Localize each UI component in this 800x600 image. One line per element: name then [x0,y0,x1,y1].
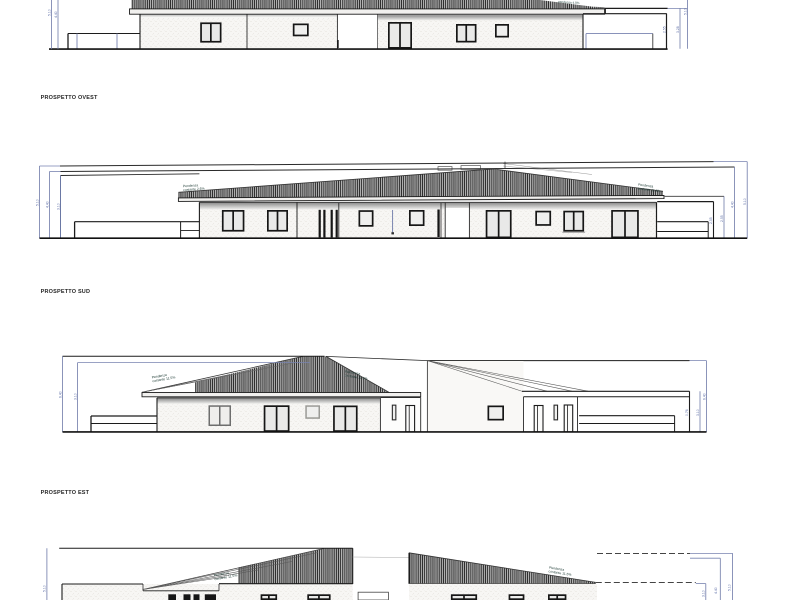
svg-text:PROSPETTO SUD: PROSPETTO SUD [41,289,91,295]
svg-text:PROSPETTO OVEST: PROSPETTO OVEST [41,95,98,101]
svg-text:6.40: 6.40 [702,393,706,400]
svg-text:5.10: 5.10 [743,198,747,205]
svg-text:4.40: 4.40 [45,201,49,208]
svg-text:3.10: 3.10 [702,590,706,597]
svg-text:0.76: 0.76 [685,409,689,416]
svg-text:2.55: 2.55 [709,217,713,224]
svg-text:4.40: 4.40 [714,587,718,594]
svg-text:PROSPETTO EST: PROSPETTO EST [41,490,90,496]
svg-text:2.55: 2.55 [720,215,724,222]
svg-text:5.10: 5.10 [728,584,732,591]
svg-text:3.10: 3.10 [56,203,60,210]
svg-text:5.10: 5.10 [43,585,47,592]
svg-text:4.40: 4.40 [54,11,58,18]
svg-text:3.10: 3.10 [696,409,700,416]
svg-text:5.10: 5.10 [47,9,51,16]
svg-text:2.55: 2.55 [662,26,666,33]
svg-text:5.10: 5.10 [683,8,687,15]
svg-text:3.10: 3.10 [73,393,77,400]
svg-text:5.10: 5.10 [35,199,39,206]
svg-text:6.40: 6.40 [58,391,62,398]
svg-text:3.28: 3.28 [676,26,680,33]
svg-text:4.40: 4.40 [730,201,734,208]
